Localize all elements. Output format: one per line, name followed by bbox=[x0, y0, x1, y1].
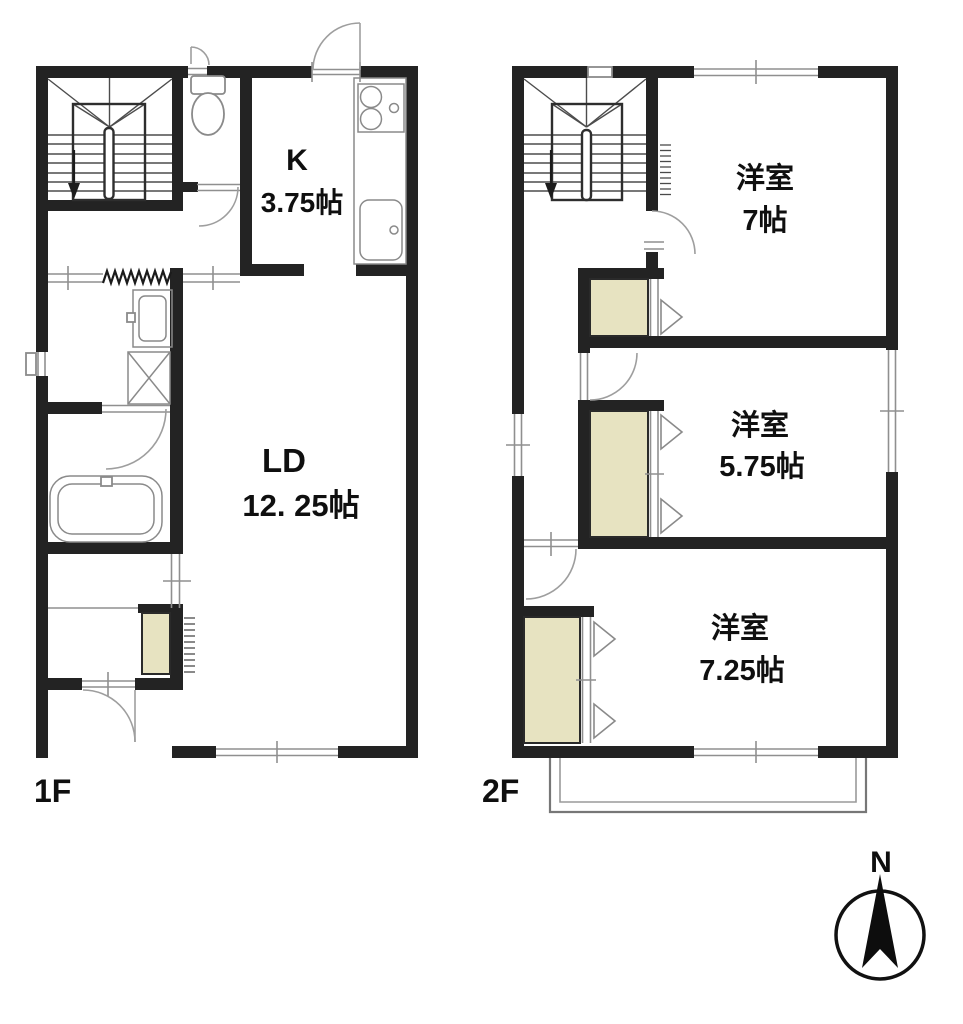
window-room2-right bbox=[880, 350, 904, 472]
floor-2f-plan: 洋室 7帖 洋室 5.75帖 洋室 7.25帖 2F bbox=[482, 60, 904, 812]
floor-label-1f: 1F bbox=[34, 773, 71, 809]
window-stairwell-top bbox=[588, 67, 612, 77]
closet-door-marker bbox=[661, 300, 682, 334]
closet-room1 bbox=[590, 279, 682, 336]
toilet-icon bbox=[191, 76, 225, 135]
bathroom-door bbox=[102, 406, 170, 470]
window-left-1f bbox=[26, 352, 45, 376]
window-ld-bottom bbox=[216, 741, 338, 763]
room-label-kitchen: K bbox=[286, 144, 308, 177]
hall-ld-doorway bbox=[163, 554, 191, 608]
room2-size: 5.75帖 bbox=[719, 450, 804, 483]
room1-label: 洋室 bbox=[736, 161, 794, 195]
floor-1f-plan: K 3.75帖 LD 12. 25帖 1F bbox=[26, 23, 418, 809]
walls-1f bbox=[36, 66, 418, 758]
window-room3-bottom bbox=[694, 741, 818, 763]
room3-label: 洋室 bbox=[711, 611, 769, 645]
closet-door-marker bbox=[594, 622, 615, 656]
room1-door bbox=[644, 211, 695, 254]
stove-icon bbox=[358, 84, 404, 132]
room3-size: 7.25帖 bbox=[699, 654, 784, 687]
toilet-door bbox=[197, 185, 240, 227]
room-size-living: 12. 25帖 bbox=[242, 488, 359, 523]
closet-room2 bbox=[590, 411, 682, 537]
washing-machine-icon bbox=[128, 352, 170, 404]
stairwell-hatch bbox=[660, 145, 671, 195]
balcony bbox=[550, 758, 866, 812]
window-corridor-left bbox=[506, 414, 530, 476]
bathtub-icon bbox=[50, 476, 162, 542]
staircase-1f-icon bbox=[48, 78, 172, 200]
accordion-door-icon bbox=[103, 271, 171, 283]
closet-room3 bbox=[524, 617, 615, 743]
toilet-window bbox=[188, 47, 209, 75]
room2-label: 洋室 bbox=[731, 408, 789, 442]
washroom-opening bbox=[48, 266, 240, 290]
room-size-kitchen: 3.75帖 bbox=[261, 187, 344, 218]
compass-north-label: N bbox=[870, 846, 892, 879]
floor-label-2f: 2F bbox=[482, 773, 519, 809]
closet-door-marker bbox=[661, 415, 682, 449]
compass-icon: N bbox=[836, 846, 924, 979]
entrance-door bbox=[82, 672, 135, 742]
kitchen-back-door bbox=[312, 23, 360, 82]
compass-needle bbox=[862, 874, 898, 968]
room2-door bbox=[581, 353, 638, 400]
shoe-closet-louver bbox=[184, 618, 195, 672]
kitchen-sink-icon bbox=[360, 200, 402, 260]
room3-door bbox=[524, 532, 578, 599]
window-room1-top bbox=[694, 60, 818, 84]
staircase-2f-icon bbox=[524, 78, 646, 200]
floorplan-drawing: K 3.75帖 LD 12. 25帖 1F bbox=[0, 0, 963, 1024]
washbasin-icon bbox=[127, 290, 172, 347]
closet-door-marker bbox=[661, 499, 682, 533]
room-label-living: LD bbox=[262, 442, 306, 479]
closet-door-marker bbox=[594, 704, 615, 738]
shoe-closet bbox=[142, 613, 170, 674]
room1-size: 7帖 bbox=[742, 204, 787, 237]
floorplan-canvas: K 3.75帖 LD 12. 25帖 1F bbox=[0, 0, 963, 1024]
